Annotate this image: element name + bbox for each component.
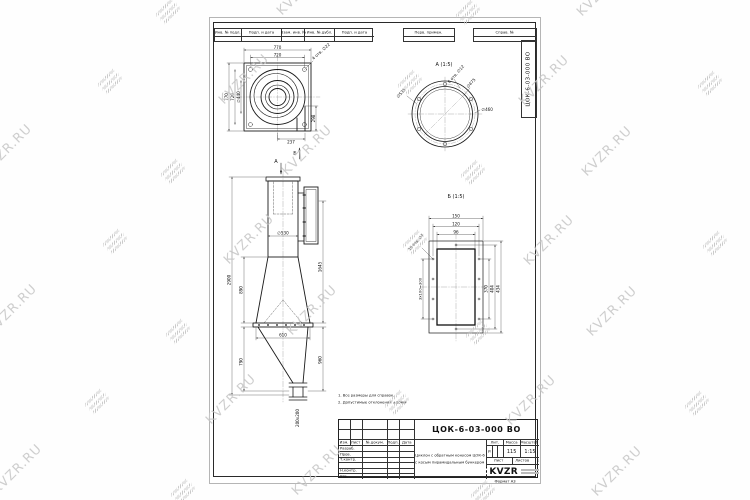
product-name-line2: с косым пирамидальным бункером (415, 460, 484, 464)
watermark-text: KVZR.RU (0, 281, 40, 337)
dim-label: 237 (287, 140, 295, 145)
dim-label: ∅440 (236, 91, 241, 103)
rev-header-label: Лист (351, 440, 360, 444)
dim-label: 720 (230, 93, 235, 101)
company-logo-text: KVZR (489, 467, 518, 477)
sheets-label: Листов (516, 458, 530, 462)
scale-label: Масштаб (521, 440, 539, 444)
rev-header-cell: Подп. (387, 439, 399, 445)
watermark-text: KVZR.RU (0, 0, 30, 18)
dim-label: ∅535 (395, 87, 407, 99)
dim-label: ∅460 (482, 107, 494, 112)
watermark-text: KVZR.RU (589, 443, 645, 499)
view-a-round-flange: А (1:5) ∅535 ∅4 (395, 62, 493, 151)
rev-header-cell: № докум. (362, 439, 387, 445)
view-a-title: А (1:5) (436, 62, 453, 68)
sheets-value: 1 (537, 458, 539, 462)
dim-label: 720 (274, 52, 282, 57)
holes-note: 4 отв. ∅22 (311, 42, 331, 61)
company-logo-sublines (521, 469, 539, 474)
view-direction-arrows: А Б (274, 148, 299, 174)
mass-value: 115 (507, 448, 516, 454)
dim-label: 96 (453, 229, 459, 234)
watermark-logo-icon (702, 231, 729, 258)
dim-label: ∅475 (465, 77, 477, 89)
dim-label: 960 (318, 356, 323, 364)
sheet-label: Лист (494, 458, 503, 462)
format-note: Формат А3 (494, 479, 515, 483)
rev-header-label: Изм. (340, 440, 349, 444)
rev-header-label: Дата (402, 440, 412, 444)
role-label: Пров. (340, 452, 351, 456)
technical-notes: 1. Все размеры для справок. 2. Допустимы… (338, 392, 458, 406)
product-name: Циклон с обратным конусом ЦОК-6 с косым … (414, 439, 486, 479)
watermark-text: KVZR.RU (0, 121, 35, 177)
scale-value: 1:15 (524, 448, 535, 454)
page: Инв. № подл.Подп. и датаВзам. инв. №Инв.… (0, 0, 750, 500)
view-b-title: Б (1:5) (448, 194, 465, 200)
note-line: 1. Все размеры для справок. (338, 393, 394, 397)
dim-label: 298 (311, 114, 316, 122)
watermark-text: KVZR.RU (274, 0, 330, 19)
dim-label: ∅530 (277, 230, 289, 235)
watermark-logo-icon (102, 229, 129, 256)
top-view-scroll: 770 720 770 720 ∅440 298 (224, 42, 331, 145)
company-logo-icon (486, 467, 487, 476)
dim-label: 2900 (227, 274, 232, 285)
watermark-logo-icon (684, 391, 711, 418)
lit-label: Лит. (490, 440, 499, 444)
rev-header-label: № докум. (365, 440, 383, 444)
drawing-views: 770 720 770 720 ∅440 298 (214, 22, 538, 478)
dim-label: 404 (490, 285, 495, 293)
watermark-logo-icon (165, 319, 192, 346)
front-elevation-view: 200х200 2900 890 790 (227, 171, 326, 427)
view-b-rect-flange: Б (1:5) (407, 194, 503, 341)
arrow-b-label: Б (293, 151, 297, 157)
note-line: 2. Допустимые отклонения ±10мм (338, 400, 406, 404)
watermark-logo-icon (97, 69, 124, 96)
dim-label: 120 (452, 221, 460, 226)
lit-value: И (488, 449, 491, 453)
watermark-text: KVZR.RU (579, 123, 635, 179)
rev-header-label: Подп. (387, 440, 398, 444)
dim-label: 434 (496, 285, 501, 293)
dim-label: 610 (279, 333, 287, 338)
rev-header-cell: Дата (399, 439, 414, 445)
role-label: Н.контр. (340, 468, 357, 472)
dim-label: 150 (452, 213, 460, 218)
dim-label: 1645 (318, 261, 323, 272)
role-label: Т.контр. (340, 457, 356, 461)
dim-label: 890 (239, 286, 244, 294)
dim-label: 370 (484, 285, 489, 293)
drawing-sheet: Инв. № подл.Подп. и датаВзам. инв. №Инв.… (209, 17, 541, 484)
arrow-a-label: А (274, 159, 278, 165)
watermark-text: KVZR.RU (0, 441, 45, 497)
watermark-logo-icon (170, 479, 197, 500)
role-label: Утв. (340, 474, 348, 478)
watermark-text: KVZR.RU (574, 0, 630, 20)
dim-label: 3х100=300 (418, 277, 423, 300)
watermark-logo-icon (160, 159, 187, 186)
role-row: Утв. (339, 473, 362, 479)
dim-label: 790 (239, 358, 244, 366)
title-block: Изм.Лист№ докум.Подп.Дата Разраб.Пров.Т.… (338, 419, 538, 478)
product-name-line1: Циклон с обратным конусом ЦОК-6 (415, 453, 484, 457)
dim-label: 770 (224, 93, 229, 101)
watermark-logo-icon (155, 0, 182, 26)
mass-label: Масса (506, 440, 518, 444)
company-logo: KVZR (486, 464, 539, 479)
watermark-logo-icon (697, 71, 724, 98)
watermark-logo-icon (84, 389, 111, 416)
role-label: Разраб. (340, 446, 355, 450)
doc-number: ЦОК-6-03-000 ВО (414, 420, 539, 439)
dim-label: 200х200 (295, 409, 300, 427)
watermark-text: KVZR.RU (584, 283, 640, 339)
dim-label: 770 (274, 45, 282, 50)
